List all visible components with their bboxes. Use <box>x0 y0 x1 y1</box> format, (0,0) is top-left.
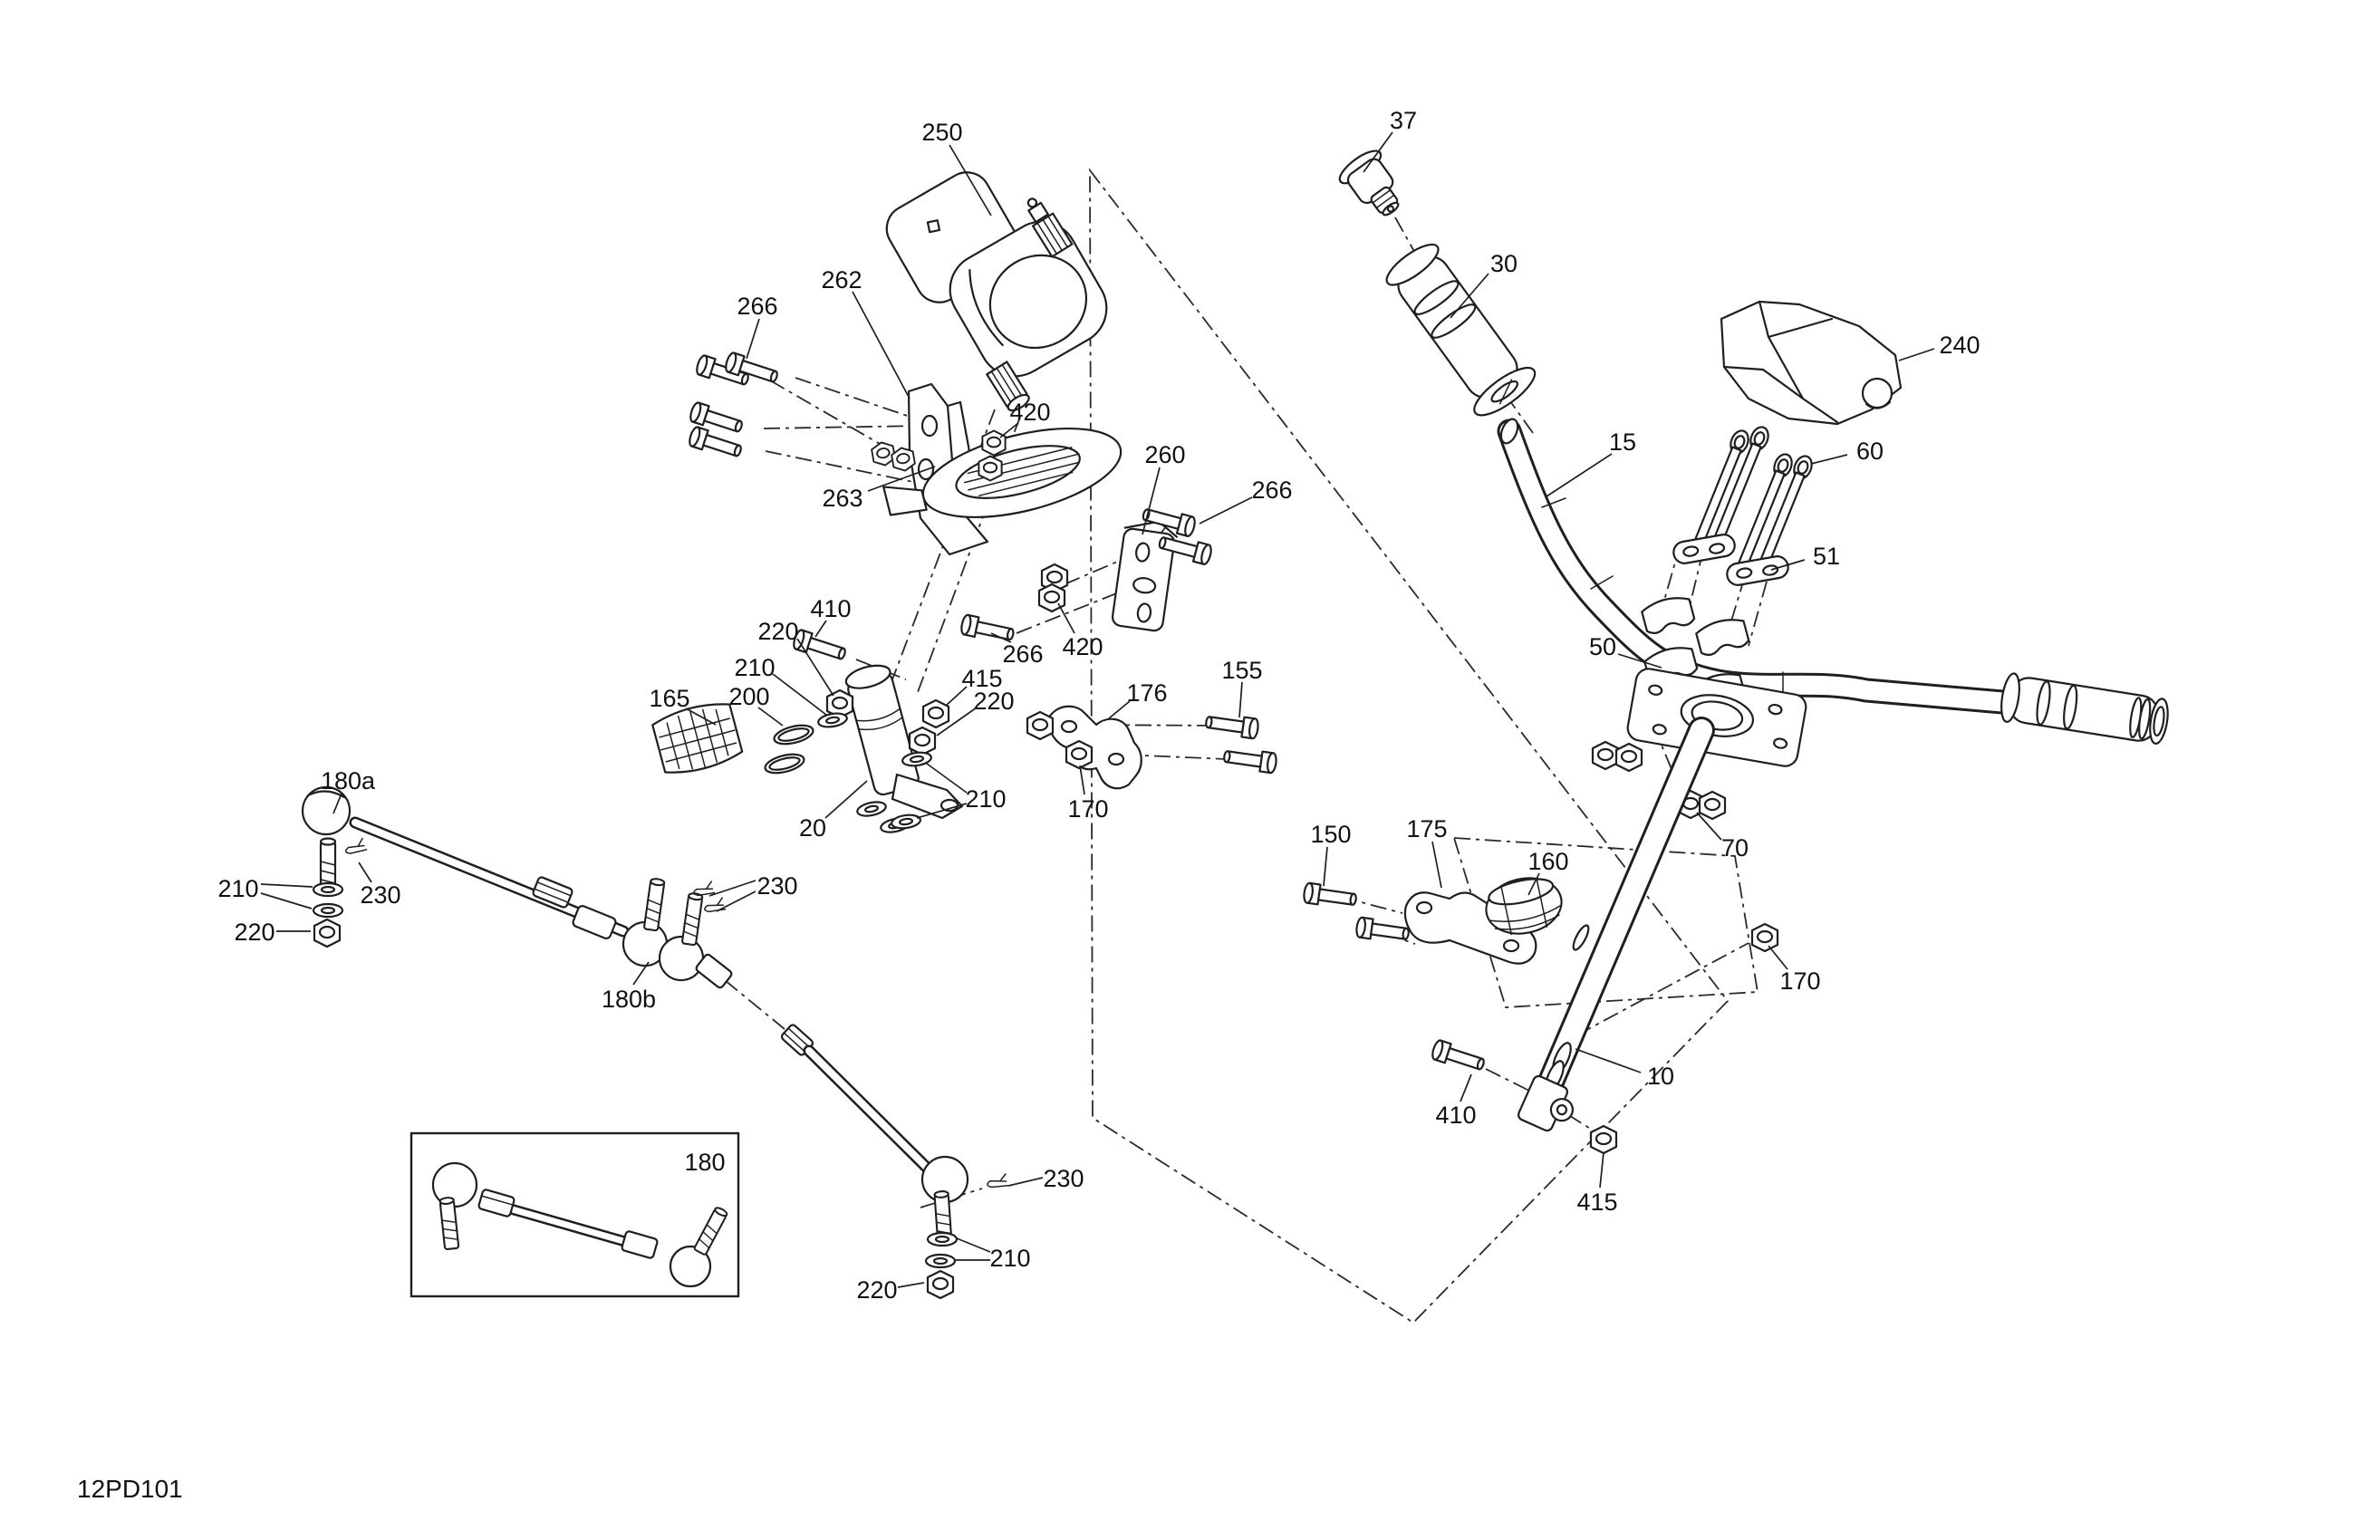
pad-240-drawing <box>1721 302 1901 424</box>
cotter-pin-230-drawing <box>703 898 726 914</box>
part-label-165: 165 <box>649 685 689 712</box>
nut-420-drawing <box>978 457 1001 481</box>
leader-line-240 <box>1899 349 1934 361</box>
part-label-420: 420 <box>1062 633 1103 660</box>
part-label-220: 220 <box>234 919 275 946</box>
parts-diagram-page: 2503730240266262263420260266420266156051… <box>0 0 2380 1540</box>
nut-220-drawing <box>928 1271 953 1298</box>
part-label-410: 410 <box>1435 1102 1476 1129</box>
part-label-20: 20 <box>799 814 826 842</box>
right-grip <box>1999 672 2171 746</box>
bolt-155-drawing <box>1205 712 1259 739</box>
leader-line-170 <box>1080 765 1084 794</box>
part-label-240: 240 <box>1939 332 1980 359</box>
part-label-180a: 180a <box>321 767 376 794</box>
part-label-263: 263 <box>822 485 862 512</box>
leader-line-10 <box>1575 1049 1641 1073</box>
leader-line-60 <box>1811 455 1847 464</box>
orings-200-drawing <box>763 722 814 776</box>
part-label-230: 230 <box>1043 1165 1084 1192</box>
part-label-415: 415 <box>1576 1189 1617 1216</box>
cotter-pin-230-drawing <box>986 1174 1007 1189</box>
leader-line-210 <box>773 674 826 715</box>
nut-415-lower-drawing <box>1591 1126 1616 1153</box>
leader-line-210 <box>957 1238 990 1252</box>
part-label-10: 10 <box>1647 1063 1674 1090</box>
leader-line-266 <box>1200 497 1252 524</box>
part-label-155: 155 <box>1221 657 1262 684</box>
part-label-180b: 180b <box>602 986 656 1013</box>
part-label-250: 250 <box>921 119 962 146</box>
part-label-266: 266 <box>737 293 777 320</box>
leader-line-230 <box>709 881 756 896</box>
part-label-180: 180 <box>684 1149 725 1176</box>
washer-210-drawing <box>313 883 342 896</box>
leader-line-410 <box>815 621 826 637</box>
washer-210-drawing <box>926 1255 955 1267</box>
part-label-220: 220 <box>757 618 798 645</box>
leader-line-210 <box>261 884 313 887</box>
leader-line-262 <box>853 292 910 399</box>
leader-line-170 <box>1768 946 1787 969</box>
leader-line-150 <box>1324 847 1327 886</box>
part-label-266: 266 <box>1251 476 1292 504</box>
bolt-150-drawing <box>1355 917 1410 944</box>
nut-170-right-drawing <box>1752 924 1778 951</box>
bolts-266-upper-drawing <box>688 351 779 461</box>
drawing-code: 12PD101 <box>77 1475 183 1503</box>
bolt-155-drawing <box>1223 746 1277 774</box>
part-label-176: 176 <box>1126 679 1167 707</box>
part-label-230: 230 <box>756 872 797 900</box>
part-label-210: 210 <box>965 785 1006 813</box>
part-label-220: 220 <box>973 688 1014 715</box>
leader-line-230 <box>717 891 756 911</box>
bracket-176-drawing <box>1049 707 1142 789</box>
nut-170-drawing <box>1027 712 1053 739</box>
nut-220-drawing <box>910 727 935 755</box>
part-label-51: 51 <box>1813 543 1840 570</box>
bolt-410-upper-drawing <box>792 629 847 664</box>
leader-line-266 <box>747 319 759 359</box>
part-label-210: 210 <box>989 1245 1030 1272</box>
part-label-170: 170 <box>1067 795 1108 823</box>
leader-line-230 <box>1008 1178 1043 1186</box>
leader-line-210 <box>261 893 312 909</box>
leader-line-200 <box>758 707 783 726</box>
leader-line-15 <box>1547 454 1612 496</box>
part-label-30: 30 <box>1490 250 1518 277</box>
cotter-pin-230-drawing <box>343 839 366 857</box>
part-label-60: 60 <box>1856 438 1884 465</box>
leader-line-420 <box>1058 603 1074 633</box>
washer-210-drawing <box>817 711 848 728</box>
diagram-canvas: 2503730240266262263420260266420266156051… <box>0 0 2380 1540</box>
part-label-170: 170 <box>1779 967 1820 995</box>
nut-220-drawing <box>314 919 340 947</box>
nut-420-drawing <box>982 431 1005 456</box>
part-label-210: 210 <box>217 875 258 902</box>
column-tab <box>1571 923 1592 951</box>
leader-line-175 <box>1432 842 1441 888</box>
bolt-150-drawing <box>1303 882 1357 910</box>
leader-line-260 <box>1142 467 1160 534</box>
washer-210-drawing <box>891 813 921 830</box>
handlebar-15-drawing <box>1498 417 2171 746</box>
leader-line-410 <box>1460 1074 1471 1102</box>
nut-415-drawing <box>923 700 949 727</box>
part-label-260: 260 <box>1144 441 1185 468</box>
part-label-410: 410 <box>810 595 851 622</box>
part-label-262: 262 <box>821 266 862 294</box>
column-yoke <box>1517 1074 1580 1137</box>
part-label-220: 220 <box>856 1276 897 1304</box>
leader-line-415 <box>1600 1152 1604 1188</box>
leader-line-155 <box>1239 682 1242 717</box>
leader-line-230 <box>359 862 371 882</box>
dps-motor-250-drawing <box>878 164 1120 414</box>
part-label-266: 266 <box>1002 640 1043 668</box>
washer-210-drawing <box>313 904 342 917</box>
upper-column-20-drawing <box>843 661 962 834</box>
part-label-420: 420 <box>1009 399 1050 426</box>
nut-170-drawing <box>1066 741 1092 768</box>
part-label-15: 15 <box>1609 428 1636 456</box>
part-label-150: 150 <box>1310 821 1351 848</box>
part-label-160: 160 <box>1527 848 1568 875</box>
washer-210-drawing <box>928 1233 957 1246</box>
part-label-50: 50 <box>1589 633 1616 660</box>
part-label-210: 210 <box>734 654 775 681</box>
part-label-175: 175 <box>1406 815 1447 842</box>
bolt-410-lower-drawing <box>1431 1039 1486 1074</box>
part-label-230: 230 <box>360 881 400 909</box>
part-label-200: 200 <box>728 683 769 710</box>
part-label-37: 37 <box>1390 107 1417 134</box>
part-label-70: 70 <box>1721 834 1749 861</box>
leader-line-220 <box>898 1283 924 1287</box>
